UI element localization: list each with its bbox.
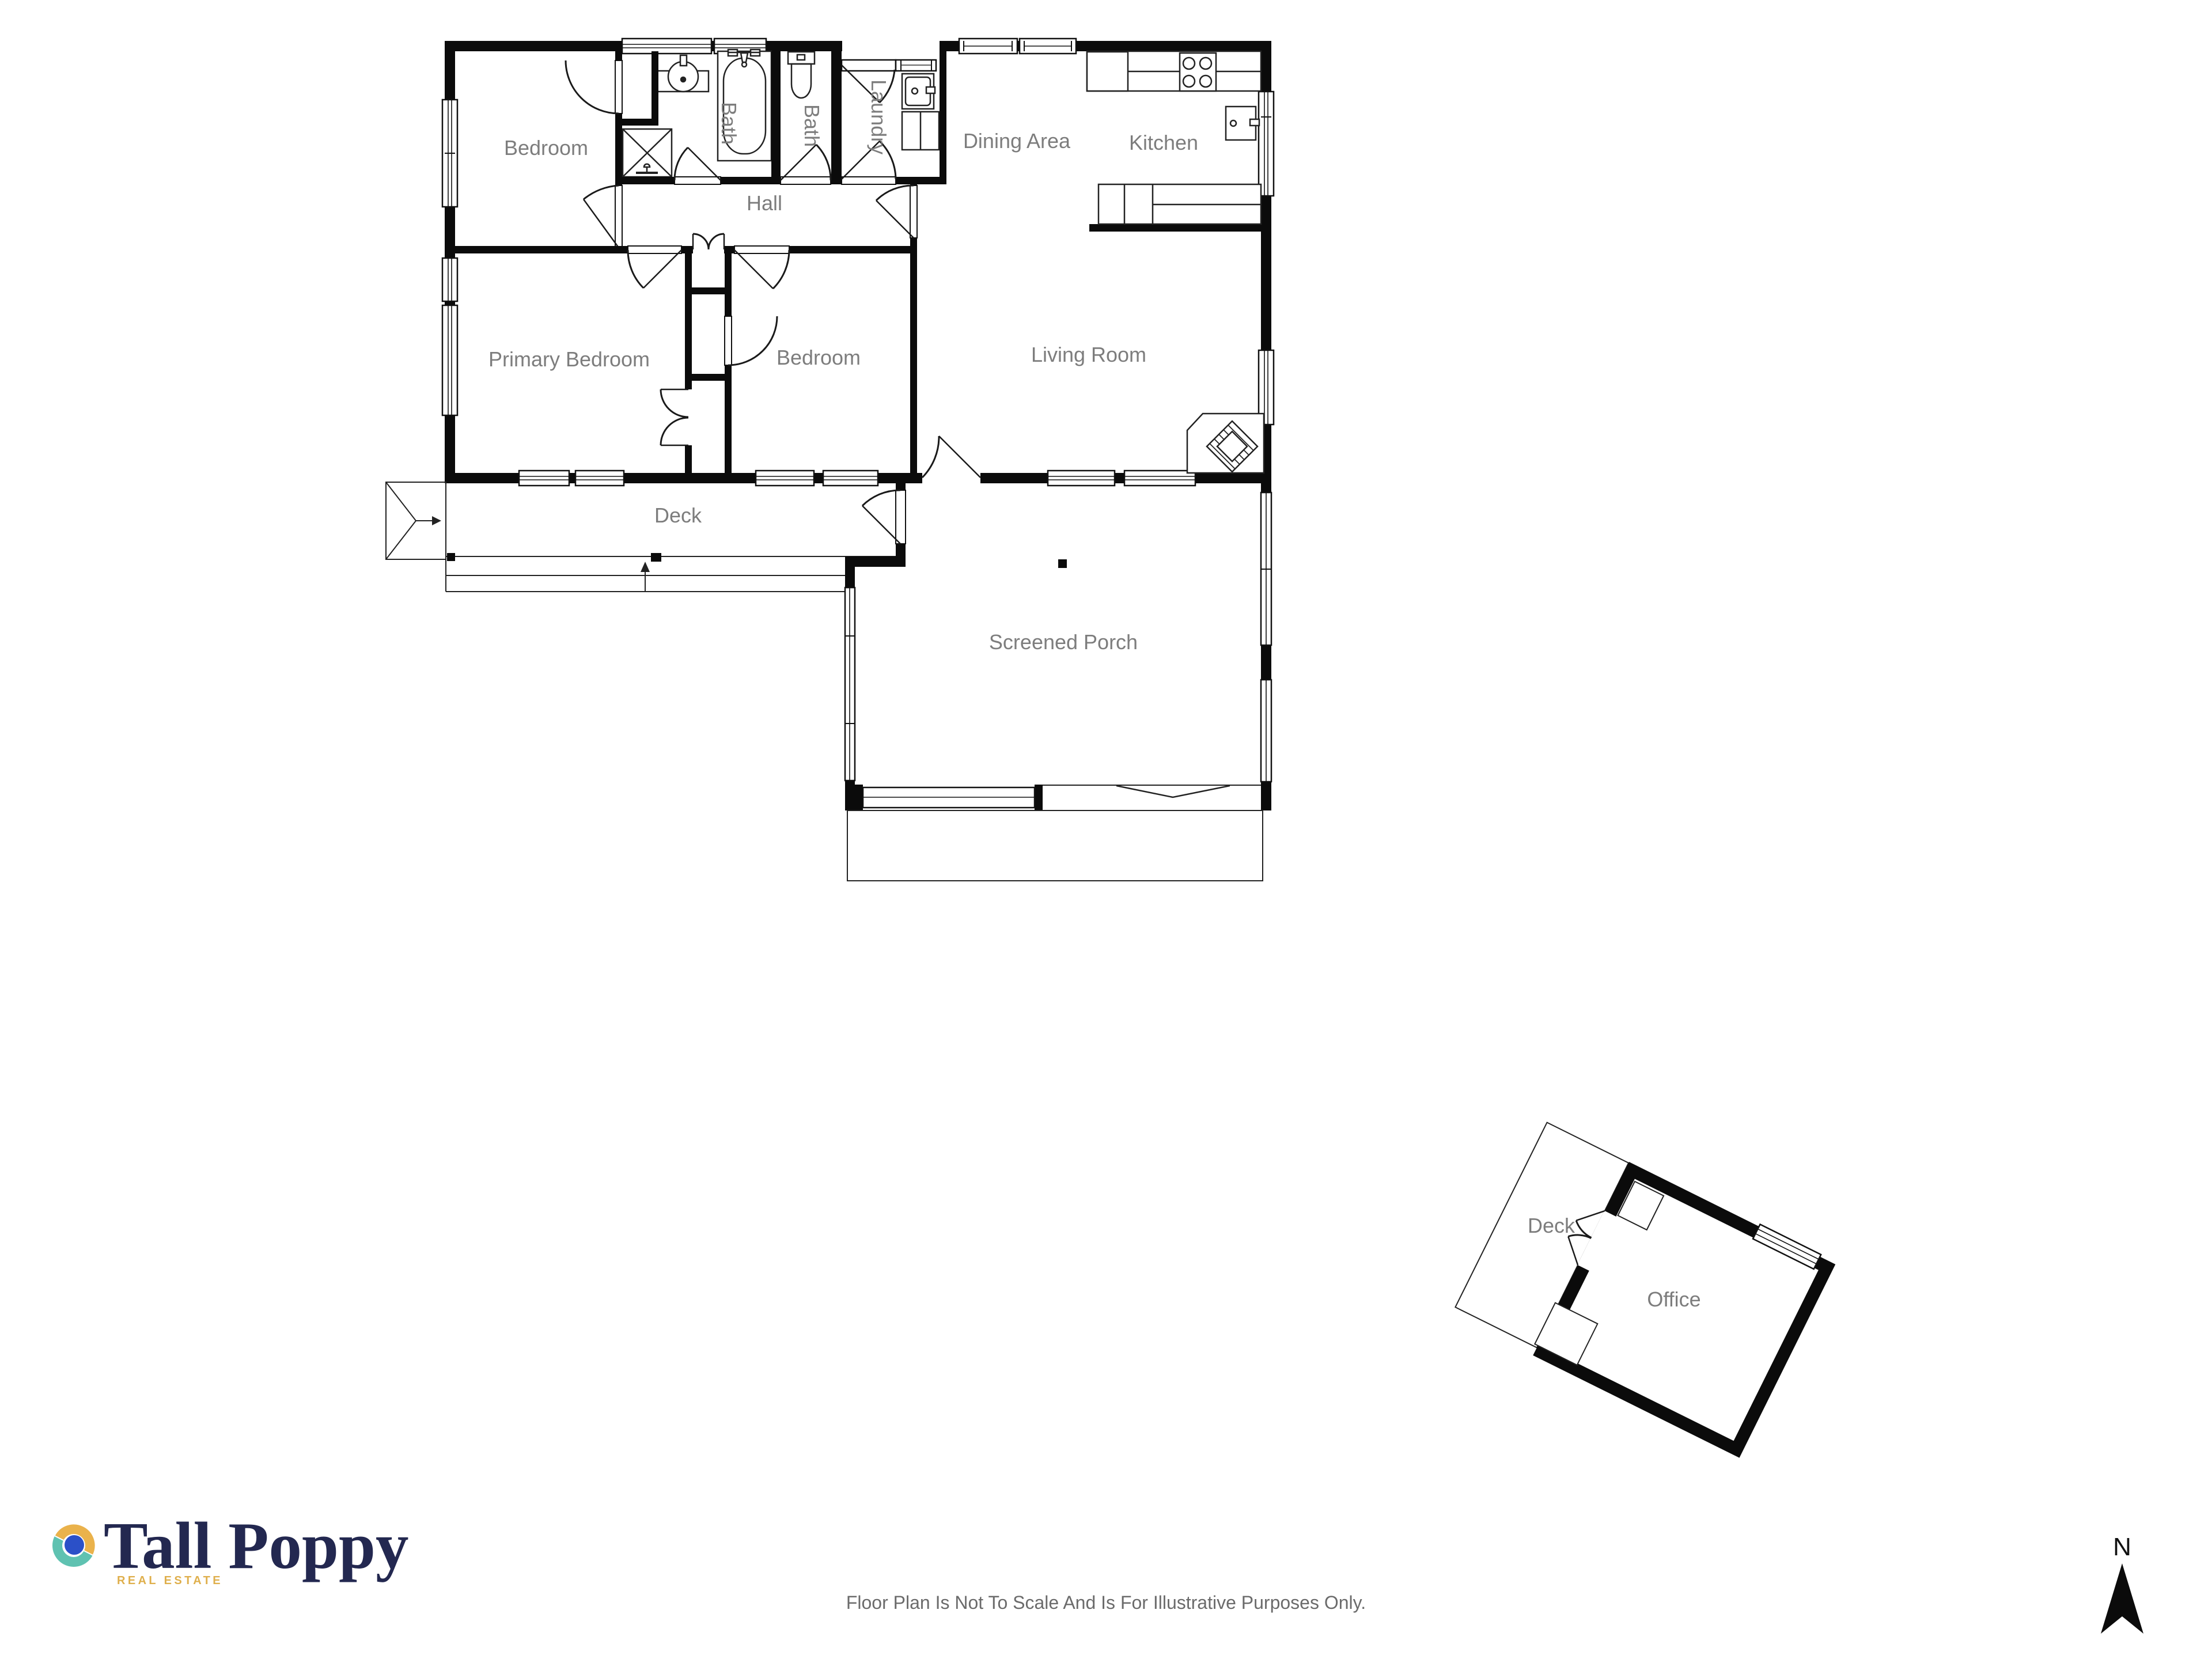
svg-text:Tall Poppy: Tall Poppy — [104, 1509, 408, 1582]
svg-text:Deck: Deck — [1528, 1214, 1575, 1237]
svg-text:Deck: Deck — [654, 503, 702, 527]
svg-text:Bedroom: Bedroom — [504, 136, 588, 160]
svg-text:Hall: Hall — [747, 191, 782, 215]
svg-text:Bath: Bath — [800, 104, 824, 147]
svg-text:Bedroom: Bedroom — [777, 346, 861, 369]
svg-text:Bath: Bath — [717, 102, 741, 145]
svg-text:Living Room: Living Room — [1031, 343, 1146, 366]
svg-text:Laundry: Laundry — [867, 79, 891, 154]
svg-text:N: N — [2113, 1533, 2131, 1561]
svg-text:Primary Bedroom: Primary Bedroom — [488, 347, 650, 371]
svg-text:Kitchen: Kitchen — [1129, 131, 1198, 154]
svg-text:Dining Area: Dining Area — [963, 129, 1071, 153]
svg-text:Screened Porch: Screened Porch — [989, 630, 1138, 654]
svg-text:REAL ESTATE: REAL ESTATE — [117, 1574, 223, 1587]
svg-text:Floor Plan Is Not To Scale And: Floor Plan Is Not To Scale And Is For Il… — [846, 1592, 1366, 1613]
svg-text:Office: Office — [1647, 1287, 1700, 1311]
